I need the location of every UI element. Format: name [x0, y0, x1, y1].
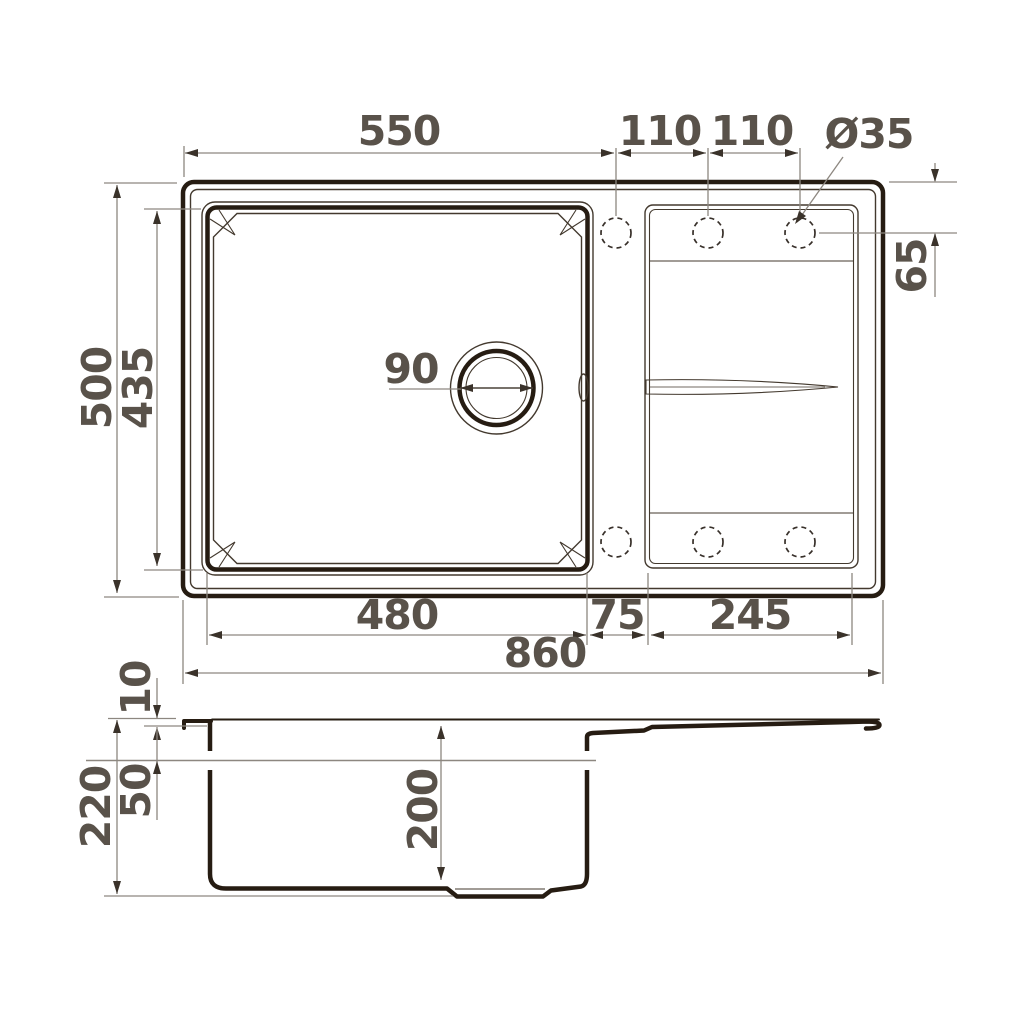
- sink-technical-drawing: 550 110 110 Ø35 500: [0, 0, 1024, 1024]
- arrowhead: [651, 631, 664, 639]
- dim-hole-diameter-label: Ø35: [825, 110, 914, 158]
- arrowhead: [601, 149, 614, 157]
- arrowhead: [437, 726, 445, 739]
- arrowhead: [113, 185, 121, 198]
- faucet-hole: [601, 218, 631, 248]
- dim-110-right: 110: [710, 107, 798, 157]
- faucet-hole: [693, 218, 723, 248]
- dim-550: 550: [185, 107, 614, 157]
- dim-110-left: 110: [618, 107, 706, 157]
- arrowhead: [837, 631, 850, 639]
- dim-245-label: 245: [709, 591, 792, 639]
- dim-200-label: 200: [399, 769, 447, 852]
- dim-435-label: 435: [114, 347, 162, 430]
- top-view: [183, 182, 883, 596]
- faucet-holes: [601, 218, 815, 557]
- dim-75: 75: [589, 591, 645, 639]
- arrowhead: [868, 669, 881, 677]
- dim-480-label: 480: [356, 591, 439, 639]
- side-view: [86, 720, 880, 897]
- faucet-hole: [693, 527, 723, 557]
- arrowhead: [795, 211, 806, 224]
- section-profile: [210, 722, 880, 897]
- arrowhead: [153, 553, 161, 566]
- arrowhead: [209, 631, 222, 639]
- dim-110-label: 110: [711, 107, 794, 155]
- faucet-hole: [785, 527, 815, 557]
- dim-65: 65: [888, 163, 939, 297]
- arrowhead: [185, 669, 198, 677]
- arrowhead: [437, 867, 445, 880]
- extension-line: [104, 146, 957, 896]
- dim-550-label: 550: [358, 107, 441, 155]
- dimensions: 550 110 110 Ø35 500: [72, 107, 957, 896]
- dim-90-label: 90: [383, 345, 438, 393]
- dim-50: 50: [112, 727, 161, 820]
- drainboard-inner: [650, 210, 854, 564]
- rim-lip: [184, 721, 211, 728]
- arrowhead: [185, 149, 198, 157]
- dim-110-label: 110: [619, 107, 702, 155]
- dim-10-label: 10: [112, 660, 160, 715]
- faucet-hole: [785, 218, 815, 248]
- dim-860-label: 860: [504, 629, 587, 677]
- arrowhead: [931, 169, 939, 182]
- drainboard: [645, 205, 858, 568]
- corner-fan: [210, 210, 235, 235]
- arrowhead: [113, 881, 121, 894]
- arrowhead: [113, 580, 121, 593]
- corner-fan: [560, 210, 585, 235]
- dim-75-label: 75: [589, 591, 644, 639]
- dim-435: 435: [114, 211, 162, 566]
- dim-50-label: 50: [112, 763, 160, 818]
- faucet-hole: [601, 527, 631, 557]
- extension-lines: [104, 146, 957, 896]
- arrowhead: [113, 720, 121, 733]
- corner-fan: [210, 542, 235, 567]
- dim-200: 200: [399, 726, 447, 880]
- corner-fan: [560, 542, 585, 567]
- arrowhead: [153, 211, 161, 224]
- dim-65-label: 65: [888, 238, 936, 293]
